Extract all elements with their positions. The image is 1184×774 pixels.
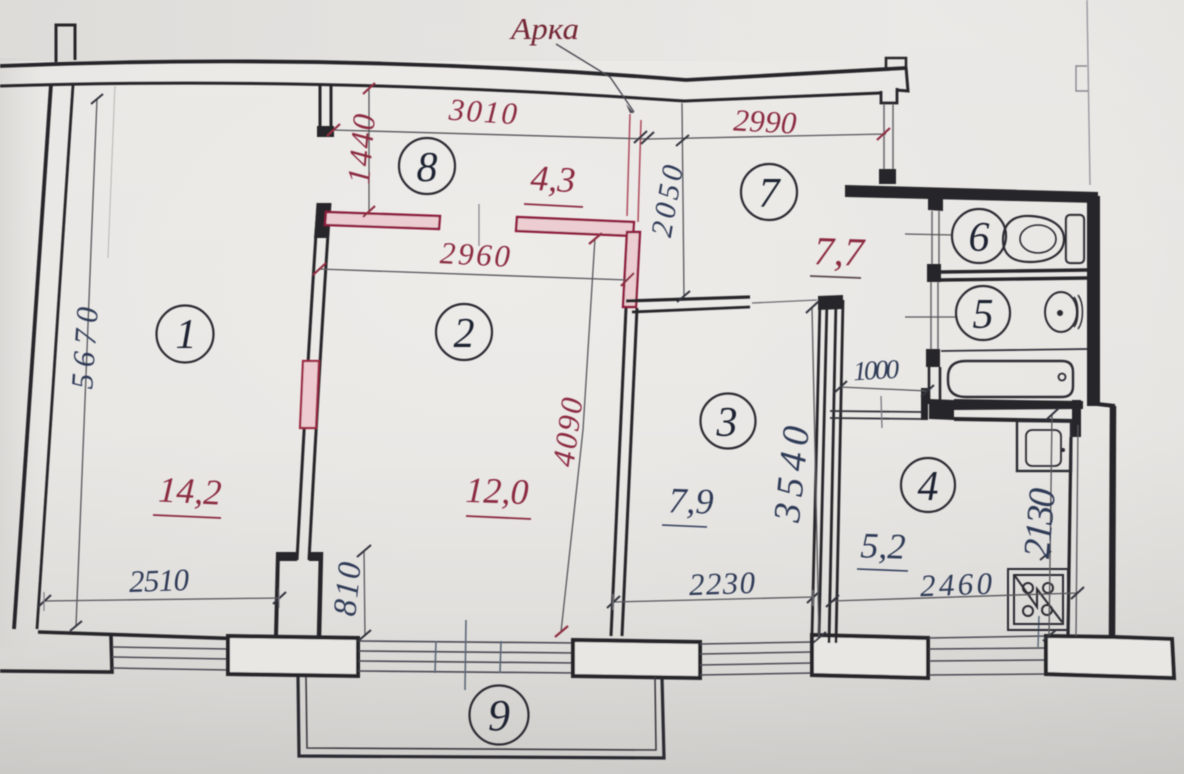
svg-text:2990: 2990 — [733, 102, 798, 140]
svg-text:7,7: 7,7 — [813, 228, 867, 275]
svg-text:1000: 1000 — [852, 354, 900, 386]
svg-text:4,3: 4,3 — [530, 158, 577, 200]
svg-text:2130: 2130 — [1016, 486, 1064, 559]
svg-text:7: 7 — [759, 171, 782, 217]
svg-text:9: 9 — [488, 691, 510, 740]
svg-text:6: 6 — [969, 215, 990, 261]
svg-text:5: 5 — [973, 292, 994, 338]
svg-text:Арка: Арка — [509, 11, 579, 46]
svg-text:14,2: 14,2 — [157, 469, 222, 512]
svg-text:3: 3 — [716, 400, 738, 446]
svg-text:810: 810 — [327, 560, 368, 618]
svg-text:2510: 2510 — [128, 562, 190, 599]
svg-text:12,0: 12,0 — [465, 470, 529, 512]
svg-text:8: 8 — [417, 145, 438, 191]
svg-text:2: 2 — [454, 311, 475, 357]
svg-text:5,2: 5,2 — [860, 525, 906, 567]
svg-text:4: 4 — [918, 464, 939, 510]
svg-text:7,9: 7,9 — [668, 480, 714, 522]
svg-text:1: 1 — [176, 312, 197, 358]
svg-text:2230: 2230 — [688, 565, 756, 602]
